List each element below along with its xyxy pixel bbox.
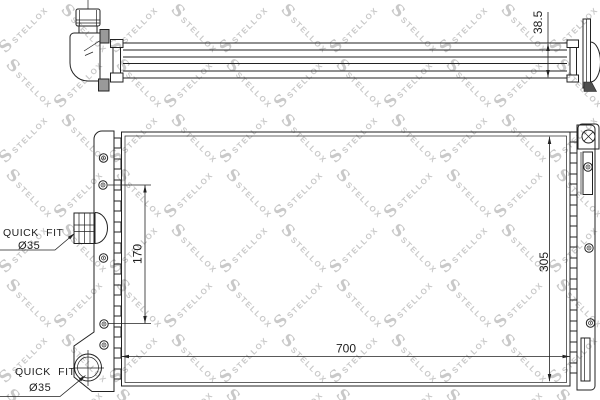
width-dimension-label: 700 [336,342,356,356]
radiator-technical-drawing: SSTELLOX SSTELLOX SSTELLOX SSTELLOX [0,0,600,400]
quick-fit-upper-title: QUICK FIT [3,227,64,239]
stellox-watermark-layer [0,0,600,400]
height-dimension-label: 305 [537,252,551,272]
thickness-dimension-label: 38.5 [531,10,545,34]
quick-fit-lower-title: QUICK FIT [15,366,76,378]
elbow-lower-tab [99,79,110,91]
pin-spacing-dimension-label: 170 [131,244,145,264]
elbow-upper-tab [100,30,109,44]
radiator-technical-drawing-page: SSTELLOX SSTELLOX SSTELLOX SSTELLOX [0,0,600,400]
quick-fit-lower-size: Ø35 [29,382,51,394]
